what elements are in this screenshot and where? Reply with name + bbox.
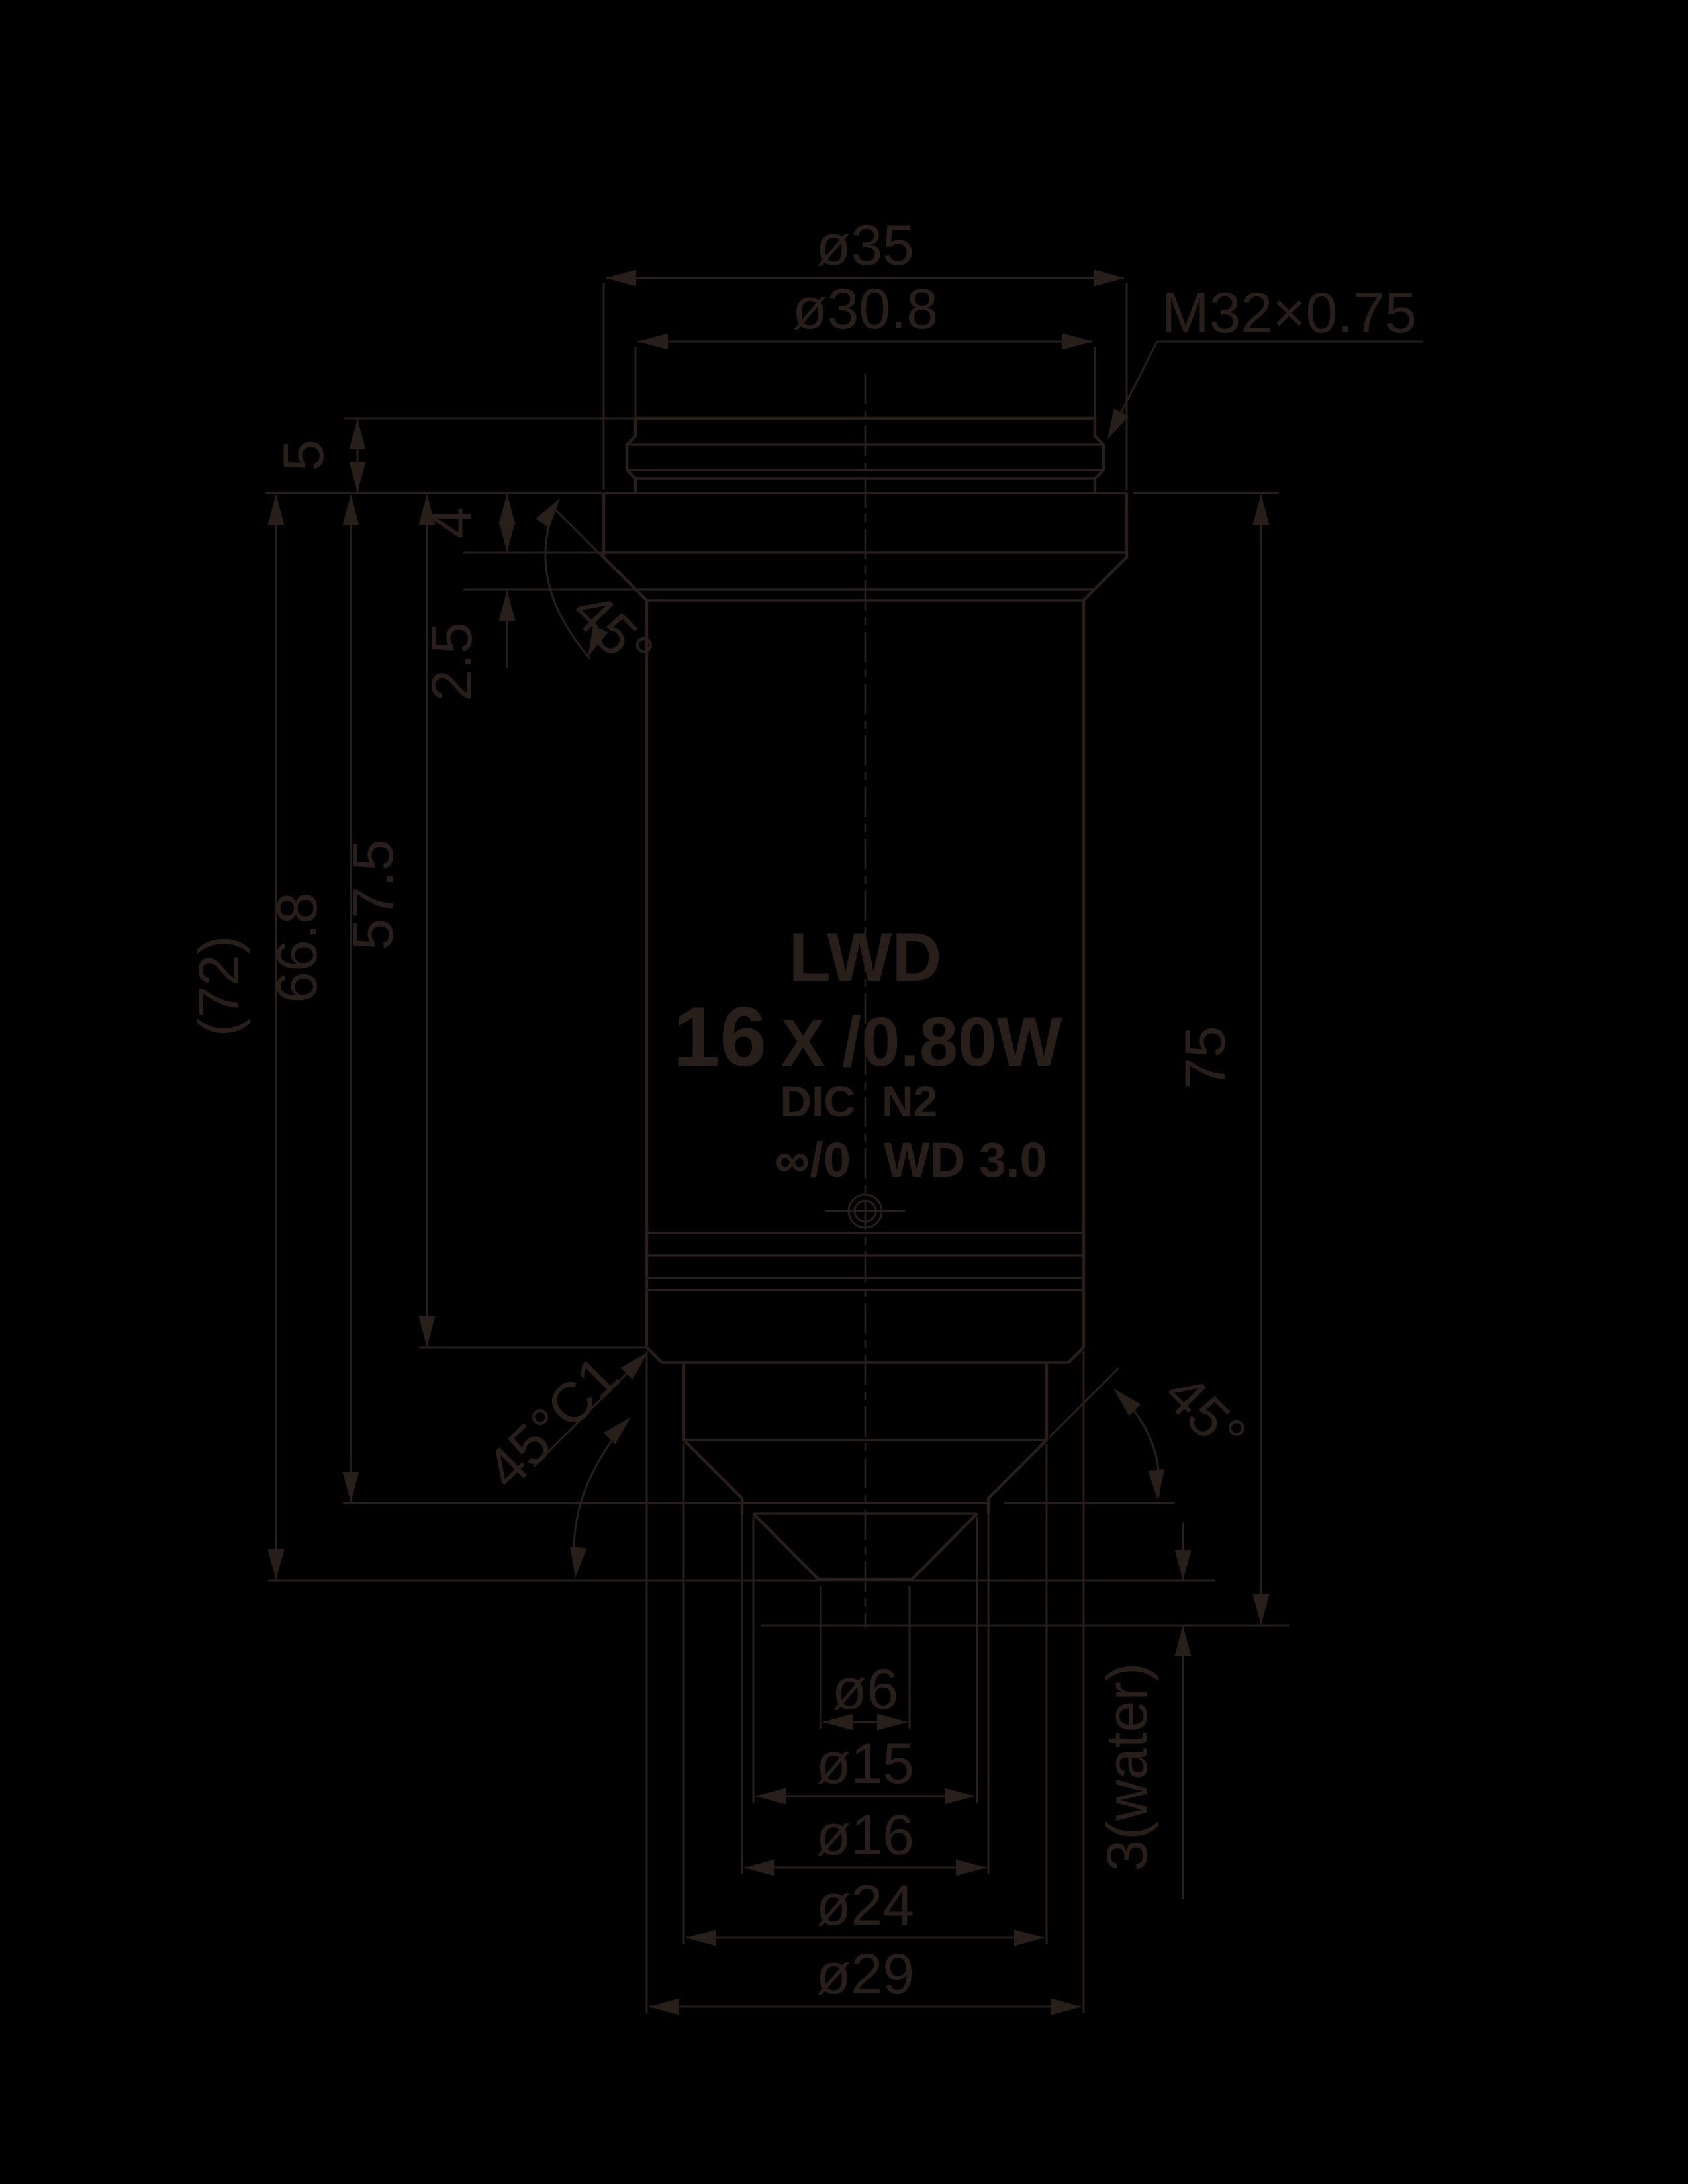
chamfer-c1-label: 45°C1 [474, 1344, 632, 1502]
marking-mag-x: X [781, 1006, 825, 1080]
callout-thread-spec: M32×0.75 [1100, 281, 1423, 443]
angle-cone-arrow-lower [1148, 1469, 1166, 1500]
dim-5-arrow-bottom [350, 462, 366, 492]
dim-dia30-8-label: ø30.8 [792, 277, 938, 341]
barrel-markings: LWD 16 X /0.80W DIC N2 ∞/0 WD 3.0 [673, 919, 1062, 1187]
thread-spec-label: M32×0.75 [1162, 281, 1417, 345]
dim-57-5: 57.5 [342, 494, 436, 1347]
dim-dia24-label: ø24 [816, 1874, 914, 1937]
dim-dia30-8-arrow-left [637, 334, 668, 350]
chamfer-c1-arc-arrow-top [604, 1411, 637, 1444]
callout-chamfer-c1: 45°C1 [474, 1344, 654, 1579]
dim-dia29-arrow-right [1051, 1999, 1082, 2015]
dim-wd-label: 3(water) [1096, 1662, 1159, 1871]
dim-66-8: 66.8 [265, 494, 359, 1502]
dim-angle-cone-45: 45° [1004, 1362, 1258, 1503]
outline-right-profile [912, 418, 1127, 1580]
dim-2-5-label: 2.5 [420, 622, 484, 702]
dim-dia15-arrow-right [945, 1788, 975, 1805]
dim-4-arrow-top [499, 494, 516, 524]
dim-72-label: (72) [187, 936, 251, 1037]
dim-dia16-arrow-right [956, 1860, 986, 1876]
chamfer-c1-arc [574, 1419, 629, 1567]
dim-dia30-8: ø30.8 [635, 277, 1095, 430]
centering-mark [825, 1195, 905, 1228]
marking-contrast: DIC [780, 1077, 855, 1126]
dim-72-arrow-top [268, 494, 285, 525]
angle-cone-label: 45° [1152, 1362, 1258, 1468]
dim-5-label: 5 [272, 439, 336, 471]
dim-dia16-label: ø16 [816, 1803, 914, 1867]
angle-cone-arrow-upper [1107, 1383, 1141, 1416]
thread-spec-arrow [1100, 408, 1129, 443]
marking-magnification: 16 [673, 989, 767, 1083]
dim-75-arrow-top [1253, 494, 1270, 525]
dim-dia16-arrow-left [744, 1860, 774, 1876]
angle-top-chamfer-extension [553, 508, 637, 592]
dim-66-8-arrow-top [343, 494, 359, 525]
dim-4-arrow-bottom [499, 522, 516, 552]
dim-57-5-label: 57.5 [342, 839, 405, 950]
dim-dia15-label: ø15 [816, 1732, 914, 1796]
dim-5: 5 [272, 419, 366, 492]
dim-wd-arrow-bottom [1175, 1625, 1192, 1656]
dim-dia29-arrow-left [649, 1999, 679, 2015]
dim-dia35-label: ø35 [816, 214, 914, 277]
dim-dia6-label: ø6 [832, 1658, 898, 1721]
dim-72: (72) [187, 494, 285, 1580]
dim-wd-arrow-top [1175, 1550, 1192, 1580]
dim-dia15-arrow-left [755, 1788, 786, 1805]
marking-na-spec: /0.80W [842, 1003, 1062, 1081]
objective-technical-drawing: LWD 16 X /0.80W DIC N2 ∞/0 WD 3.0 ø35 ø3… [0, 0, 1688, 2184]
dim-66-8-arrow-bottom [343, 1472, 359, 1502]
dim-dia24-arrow-right [1014, 1930, 1045, 1946]
marking-series: LWD [788, 919, 941, 996]
dim-2-5: 2.5 [420, 590, 516, 702]
dim-dia35-arrow-right [1094, 270, 1125, 287]
dim-57-5-arrow-bottom [419, 1316, 436, 1347]
dim-75-arrow-bottom [1253, 1594, 1270, 1625]
angle-top-arrow-upper [536, 494, 567, 528]
dim-dia35-arrow-left [606, 270, 636, 287]
dim-dia29-label: ø29 [816, 1942, 914, 2006]
dim-2-5-arrow [499, 590, 516, 621]
marking-tube-length: ∞/0 [775, 1132, 851, 1187]
dim-75-label: 75 [1174, 1026, 1237, 1089]
angle-top-label: 45° [560, 579, 666, 685]
dim-dia24-arrow-left [686, 1930, 716, 1946]
chamfer-c1-arc-arrow-bottom [567, 1547, 587, 1578]
dim-66-8-label: 66.8 [265, 892, 329, 1003]
dim-5-arrow-top [350, 419, 366, 449]
dim-dia30-8-arrow-right [1062, 334, 1093, 350]
drawing-page: LWD 16 X /0.80W DIC N2 ∞/0 WD 3.0 ø35 ø3… [0, 0, 1688, 2184]
marking-nosepiece-code: N2 [882, 1077, 937, 1126]
dim-dia6: ø6 [821, 1586, 910, 1731]
marking-working-distance: WD 3.0 [884, 1132, 1047, 1187]
dim-72-arrow-bottom [268, 1549, 285, 1580]
